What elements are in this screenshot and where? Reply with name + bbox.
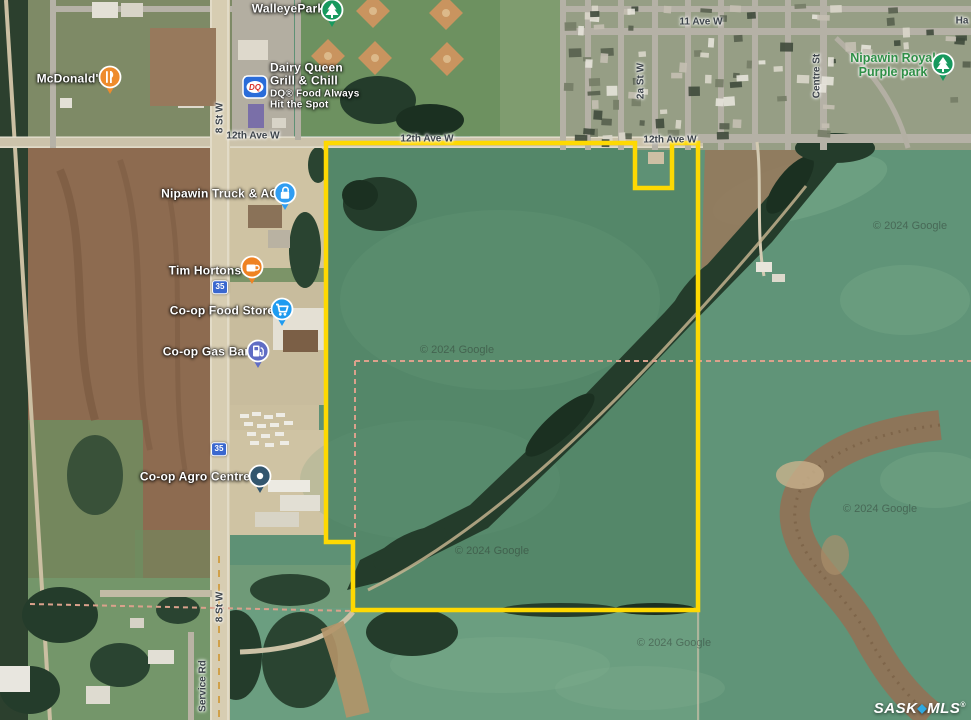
poi-label-walleye-park: WalleyePark — [252, 2, 324, 15]
street-label-centre-st: Centre St — [811, 54, 822, 98]
sask-mls-watermark: SASK◆MLS® — [874, 700, 966, 717]
satellite-map[interactable]: 12th Ave W12th Ave W12th Ave W11 Ave W2a… — [0, 0, 971, 720]
sask-text: SASK — [874, 700, 918, 717]
walleyepark-icon[interactable] — [319, 0, 345, 33]
street-label-11-ave-w: 11 Ave W — [679, 16, 722, 27]
google-attribution-2: © 2024 Google — [455, 545, 529, 557]
google-attribution-1: © 2024 Google — [420, 344, 494, 356]
poi-label-dairy-queen: Dairy QueenGrill & ChillDQ® Food AlwaysH… — [270, 61, 359, 110]
sask-diamond-icon: ◆ — [917, 701, 927, 715]
street-label-12th-ave-w-east: 12th Ave W — [643, 134, 696, 145]
dq-logo-icon[interactable]: DQ — [242, 75, 268, 104]
street-label-ha-partial: Ha — [956, 15, 969, 26]
street-label-12th-ave-w-west: 12th Ave W — [226, 130, 279, 141]
poi-label-nipawin-royal-purple-park: Nipawin RoyalPurple park — [850, 51, 935, 79]
street-label-8-st-w-north: 8 St W — [214, 103, 225, 134]
coop-food-store-icon[interactable] — [269, 297, 295, 332]
poi-label-coop-agro-centre: Co-op Agro Centre — [140, 470, 250, 483]
poi-label-nipawin-truck-ag: Nipawin Truck & AG — [161, 187, 279, 200]
highway-badge-35: 35 — [211, 442, 227, 456]
google-attribution-5: © 2024 Google — [873, 220, 947, 232]
nipawin-truck-ag-icon[interactable] — [272, 181, 298, 216]
coop-gas-bar-icon[interactable] — [245, 339, 271, 374]
registered-mark: ® — [960, 702, 966, 709]
coop-agro-centre-icon[interactable] — [247, 464, 273, 499]
street-label-12th-ave-w-mid: 12th Ave W — [400, 133, 453, 144]
labels-layer: 12th Ave W12th Ave W12th Ave W11 Ave W2a… — [0, 0, 971, 720]
highway-badge-35: 35 — [212, 280, 228, 294]
poi-label-coop-gas-bar: Co-op Gas Bar — [163, 345, 250, 358]
street-label-service-rd: Service Rd — [197, 660, 208, 712]
poi-label-coop-food-store: Co-op Food Store — [170, 304, 275, 317]
poi-label-mcdonalds: McDonald's — [37, 72, 106, 85]
purple-park-icon[interactable] — [930, 52, 956, 87]
svg-text:DQ: DQ — [249, 83, 262, 92]
street-label-2a-st-w: 2a St W — [635, 63, 646, 99]
poi-label-tim-hortons: Tim Hortons — [169, 264, 242, 277]
street-label-8-st-w-south: 8 St W — [214, 592, 225, 623]
mls-text: MLS — [927, 700, 960, 717]
tim-hortons-icon[interactable] — [239, 255, 265, 290]
google-attribution-3: © 2024 Google — [637, 637, 711, 649]
mcdonalds-icon[interactable] — [97, 65, 123, 100]
google-attribution-4: © 2024 Google — [843, 503, 917, 515]
